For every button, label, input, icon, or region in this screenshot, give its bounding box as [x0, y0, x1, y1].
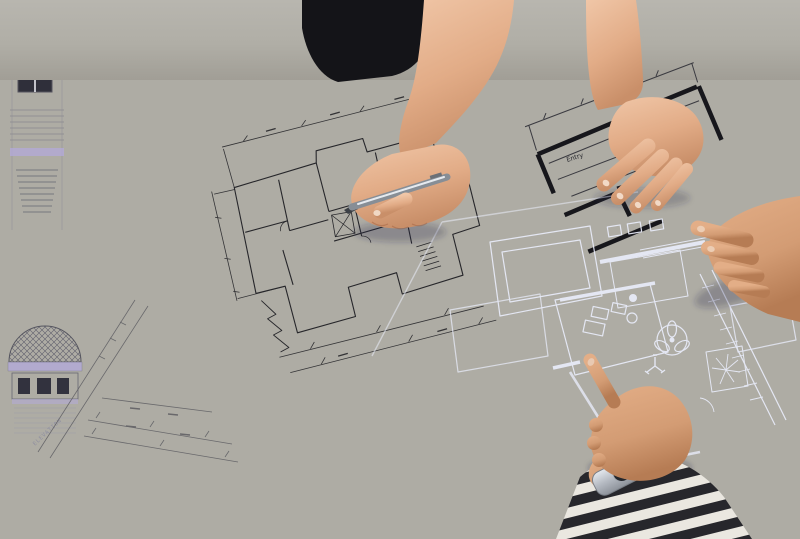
curled-finger: [592, 453, 606, 467]
curled-finger: [587, 436, 601, 450]
arm-pressing-plan: [586, 0, 704, 209]
curled-finger: [589, 418, 603, 432]
person-black-top: [302, 0, 430, 82]
fingernail: [373, 210, 380, 216]
architects-table-photo: ELEVATION: [0, 0, 800, 539]
people-layer: [0, 0, 800, 539]
index-finger-pointing: [590, 360, 614, 402]
pointing-hand-striped-sleeve: [556, 357, 752, 539]
